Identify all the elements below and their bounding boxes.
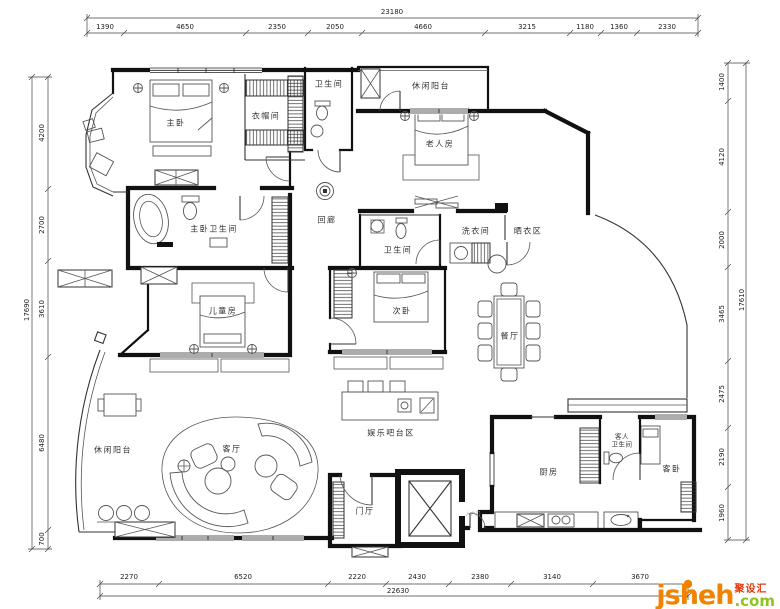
dim-right-seg-5: 2190 [718,448,726,466]
room-label-bathroom-middle: 卫生间 [384,245,413,256]
dim-top-seg-0: 1390 [96,23,114,31]
armchair [268,472,299,502]
living-rug [162,417,318,533]
room-label-elderly-room: 老人房 [426,139,455,150]
room-label-corridor: 回廊 [318,215,337,226]
elderly-bed [415,108,468,165]
dim-bottom-seg-1: 6520 [234,573,252,581]
wardrobes [246,76,696,538]
room-label-children-room: 儿童房 [209,306,238,317]
wardrobe [334,270,352,318]
kitchen-counter [495,512,598,529]
room-label-dining-room: 餐厅 [501,331,520,342]
dim-left-seg-2: 3610 [38,300,46,318]
basin [311,125,323,137]
curved-wall [595,215,687,398]
bar-stool [368,381,383,392]
side-table [255,455,277,477]
floor-plan-canvas: 23180 1390 4650 2350 2050 4660 3215 1180… [0,0,780,609]
basin [488,255,506,273]
dim-top-overall: 23180 [381,8,403,16]
toilet [396,224,406,239]
wardrobe [246,130,304,145]
dim-bottom-seg-3: 2430 [408,573,426,581]
basin [371,220,383,232]
dim-left-overall: 17690 [23,299,31,321]
dim-top-seg-7: 1360 [610,23,628,31]
children-bed [200,296,245,347]
dim-top-seg-2: 2350 [268,23,286,31]
room-label-master-bedroom: 主卧 [167,118,186,129]
dim-bottom-seg-6: 3670 [631,573,649,581]
dim-right-overall: 17610 [738,289,746,311]
toilet [184,203,197,220]
bar-stool [348,381,363,392]
column [95,332,107,344]
site-logo: jsheh 聚设汇 .com [656,584,775,608]
dim-right-seg-3: 3465 [718,305,726,323]
dim-right-seg-6: 1960 [718,504,726,522]
coffee-table [205,468,231,494]
dim-right-seg-1: 4120 [718,148,726,166]
room-label-leisure-balcony-top: 休闲阳台 [412,81,450,92]
washing-machine [450,243,472,263]
toilet [317,106,328,120]
entry-door-annotation: 入户门 [465,511,480,518]
armchair [89,153,113,176]
wardrobe [272,197,288,263]
dim-left-seg-3: 6480 [38,434,46,452]
dim-bottom-seg-2: 2220 [348,573,366,581]
logo-tld: .com [734,595,775,608]
room-label-foyer: 门厅 [356,506,375,517]
room-label-guest-bathroom: 客人 卫生间 [612,433,633,450]
dim-left-seg-1: 2700 [38,216,46,234]
room-label-drying-area: 晒衣区 [514,226,543,237]
dim-top-seg-3: 2050 [326,23,344,31]
dim-bottom-overall: 22630 [387,587,409,595]
guest-bed [641,426,660,464]
dim-bottom-seg-0: 2270 [120,573,138,581]
room-label-laundry-room: 洗衣间 [462,226,491,237]
balcony-chair [135,506,150,521]
dim-right-seg-4: 2475 [718,385,726,403]
curved-sofa [170,472,248,527]
dim-right-seg-2: 2000 [718,231,726,249]
wardrobe [681,482,696,512]
dim-right-seg-0: 1400 [718,73,726,91]
dim-bottom-seg-5: 3140 [543,573,561,581]
kitchen-cabinet [580,428,599,483]
wardrobe [246,80,304,96]
curved-sofa [258,423,312,466]
room-label-master-bathroom: 主卧卫生间 [190,224,238,235]
room-label-living-room: 客厅 [223,444,242,455]
bed-bench [153,146,211,156]
room-label-cloakroom: 衣帽间 [252,111,281,122]
floor-plan-drawing [0,0,780,609]
balcony-chair [117,506,132,521]
dim-top-seg-8: 2330 [658,23,676,31]
balcony-chair [99,506,114,521]
room-label-bathroom-top: 卫生间 [315,79,344,90]
room-label-bar-area: 娱乐吧台区 [367,428,415,439]
room-label-second-bedroom: 次卧 [393,306,412,317]
armchair [189,442,219,470]
dim-top-seg-4: 4660 [414,23,432,31]
master-bed [150,80,212,142]
bar-stool [390,381,405,392]
dim-left-seg-4: 700 [38,532,46,545]
logo-name: jsheh [656,584,733,608]
cabinet [472,243,490,263]
dim-top-seg-6: 1180 [576,23,594,31]
dim-top-seg-1: 4650 [176,23,194,31]
shoe-cabinet [333,482,344,538]
bar-counter [342,392,438,420]
dim-left-seg-0: 4200 [38,124,46,142]
furniture [83,80,660,533]
exercise-machine [104,394,136,416]
bathtub [129,191,173,247]
dim-bottom-seg-4: 2380 [471,573,489,581]
room-label-leisure-balcony-bottom: 休闲阳台 [94,445,132,456]
room-label-guest-bedroom: 客卧 [663,464,682,475]
dim-top-seg-5: 3215 [518,23,536,31]
room-label-kitchen: 厨房 [540,467,559,478]
